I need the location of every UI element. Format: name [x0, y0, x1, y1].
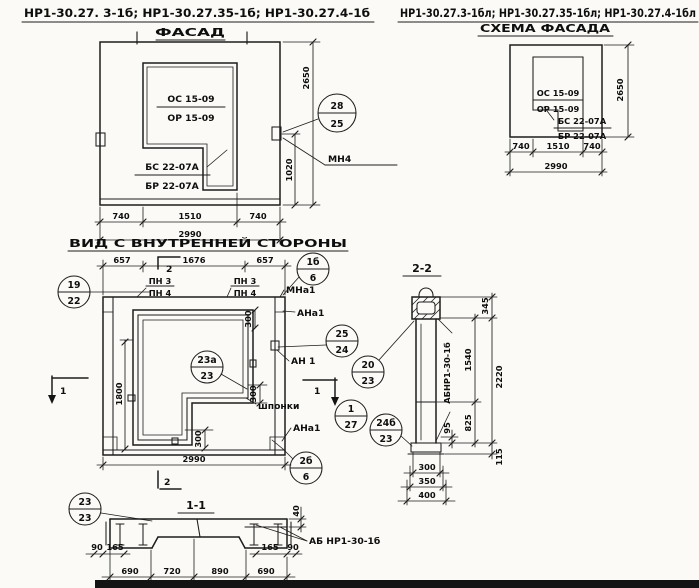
sec22-callout-20-23: 20 23 [352, 321, 414, 388]
facade-window-mark-bottom: ОР 15-09 [167, 113, 214, 124]
inner-dim-t1: 657 [113, 255, 131, 265]
inner-title: ВИД С ВНУТРЕННЕЙ СТОРОНЫ [69, 237, 347, 250]
facade-callout-top: 28 [331, 101, 344, 112]
facade-dim-left: 740 [112, 211, 130, 221]
facade-title: ФАСАД [155, 26, 225, 39]
facade-window-mark-top: ОС 15-09 [167, 94, 214, 105]
inner-callout-19-22: 19 22 [58, 276, 150, 308]
scheme-window-mark-top: ОС 15-09 [537, 88, 580, 98]
sec22-dim-345: 345 [480, 297, 490, 315]
scheme-dim-right: 740 [583, 141, 601, 151]
sec11-dim-b2: 720 [163, 566, 181, 576]
section-marker-1-left-label: 1 [60, 386, 66, 397]
sec22-callout-24b-23: 24б 23 [370, 414, 412, 446]
callout-2b-top: 2б [300, 456, 313, 467]
facade-dim-height: 2650 [301, 66, 311, 89]
facade-dim-middle: 1510 [178, 211, 201, 221]
inner-label-ana-top: АНа1 [297, 308, 324, 319]
inner-callout-1-27: 1 27 [335, 400, 367, 432]
sec11-dim-r165: 165 [261, 542, 279, 552]
sec22-dim-w3: 400 [418, 490, 436, 500]
callout-25-bottom: 24 [336, 345, 349, 356]
technical-drawing: НР1-30.27. 3-1б; НР1-30.27.35-1б; НР1-30… [0, 0, 699, 588]
callout-19-bottom: 22 [68, 296, 81, 307]
title-left: НР1-30.27. 3-1б; НР1-30.27.35-1б; НР1-30… [22, 6, 374, 22]
sec22-dim-95: 95 [442, 422, 452, 434]
sec22-beam-label: АБНР1-30-1б [442, 342, 452, 404]
sec22-dim-2220: 2220 [494, 365, 504, 388]
section-marker-2-bottom: 2 [158, 471, 181, 489]
scheme-dim-total: 2990 [544, 161, 567, 171]
callout-25-top: 25 [336, 329, 349, 340]
facade-door-mark-bottom: БР 22-07А [145, 181, 199, 192]
inner-label-pn3-left: ПН 3 [149, 276, 172, 286]
section-marker-2-top-label: 2 [166, 264, 172, 275]
inner-label-pn3-right: ПН 3 [234, 276, 257, 286]
title-left-text: НР1-30.27. 3-1б; НР1-30.27.35-1б; НР1-30… [24, 6, 370, 20]
sec11-title: 1-1 [186, 499, 206, 512]
inner-dim-s3: 300 [193, 430, 203, 448]
callout-127-top: 1 [348, 404, 354, 415]
scheme-dim-left: 740 [512, 141, 530, 151]
scheme-dim-height: 2650 [615, 78, 625, 101]
sec22-title: 2-2 [412, 262, 432, 275]
drawing-sheet: НР1-30.27. 3-1б; НР1-30.27.35-1б; НР1-30… [0, 0, 699, 588]
callout-20-bottom: 23 [362, 376, 375, 387]
callout-19-top: 19 [68, 280, 81, 291]
section-marker-1-right: 1 [303, 378, 339, 406]
section-marker-1-right-label: 1 [314, 386, 320, 397]
inner-dim-t2: 1676 [182, 255, 205, 265]
section-marker-2-bottom-label: 2 [164, 477, 170, 488]
inner-dim-door-height: 1800 [114, 382, 124, 405]
scheme-dim-middle: 1510 [546, 141, 569, 151]
title-right-text: НР1-30.27.3-1бл; НР1-30.27.35-1бл; НР1-3… [400, 6, 696, 20]
scheme-window-mark-bottom: ОР 15-09 [537, 104, 580, 114]
facade-door-mark-top: БС 22-07А [145, 162, 199, 173]
sec11-beam-label: АБ НР1-30-1б [309, 536, 381, 547]
sec22-dim-115: 115 [494, 448, 504, 466]
scheme-title: СХЕМА ФАСАДА [480, 22, 611, 35]
section-1-1: 23 23 1-1 40 АБ НР1 [69, 493, 381, 581]
callout-2323-top: 23 [79, 497, 92, 508]
facade-callout-bottom: 25 [331, 119, 344, 130]
callout-23a-top: 23а [197, 355, 216, 366]
callout-24b-bottom: 23 [380, 434, 393, 445]
section-marker-1-left: 1 [48, 376, 88, 404]
callout-20-top: 20 [362, 360, 375, 371]
callout-127-bottom: 27 [345, 420, 358, 431]
inner-callout-25-24: 25 24 [278, 325, 358, 357]
facade-anchor-label: МН4 [328, 154, 351, 165]
facade-dim-right: 740 [249, 211, 267, 221]
callout-1b-top: 1б [307, 257, 320, 268]
callout-1b-bottom: 6 [310, 273, 316, 284]
sec22-dim-825: 825 [463, 414, 473, 432]
facade-dim-anchor-height: 1020 [284, 158, 294, 181]
scheme-door-mark-top: БС 22-07А [558, 116, 607, 126]
sec11-dim-top: 40 [291, 505, 301, 517]
inner-label-shponki: шпонки [258, 401, 299, 412]
sheet-border-band [95, 580, 699, 588]
inner-dim-s1: 300 [243, 310, 253, 328]
inner-label-an: АН 1 [291, 356, 315, 367]
callout-2323-bottom: 23 [79, 513, 92, 524]
sec22-dim-w2: 350 [418, 476, 436, 486]
section-2-2: 2-2 АБНР1-30-1б 20 23 [352, 262, 504, 505]
sec11-dim-b1: 690 [121, 566, 139, 576]
inner-dim-total: 2990 [182, 454, 205, 464]
inner-dim-t3: 657 [256, 255, 274, 265]
scheme-door-mark-bottom: БР 22-07А [558, 131, 607, 141]
sec11-dim-l165: 165 [106, 542, 124, 552]
inner-callout-2b-6: 2б 6 [283, 449, 322, 484]
inner-label-ana-bottom: АНа1 [293, 423, 320, 434]
callout-24b-top: 24б [376, 418, 396, 429]
title-right: НР1-30.27.3-1бл; НР1-30.27.35-1бл; НР1-3… [398, 6, 698, 22]
inner-view: ВИД С ВНУТРЕННЕЙ СТОРОНЫ 657 1676 657 2 … [48, 237, 367, 489]
sec22-dim-w1: 300 [418, 462, 436, 472]
sec11-dim-r90: 90 [287, 542, 299, 552]
callout-23a-bottom: 23 [201, 371, 214, 382]
sec22-dim-1540: 1540 [463, 348, 473, 371]
sec11-dim-l90: 90 [91, 542, 103, 552]
facade-view: ФАСАД ОС 15-09 ОР 15-09 БС 22-07А БР 22-… [95, 26, 397, 244]
callout-2b-bottom: 6 [303, 472, 309, 483]
facade-callout: 28 25 [283, 94, 356, 132]
inner-callout-23a-23: 23а 23 [191, 351, 247, 389]
scheme-view: СХЕМА ФАСАДА ОС 15-09 ОР 15-09 БС 22-07А… [478, 22, 634, 176]
sec11-dim-b3: 890 [211, 566, 229, 576]
sec11-dim-b4: 690 [257, 566, 275, 576]
